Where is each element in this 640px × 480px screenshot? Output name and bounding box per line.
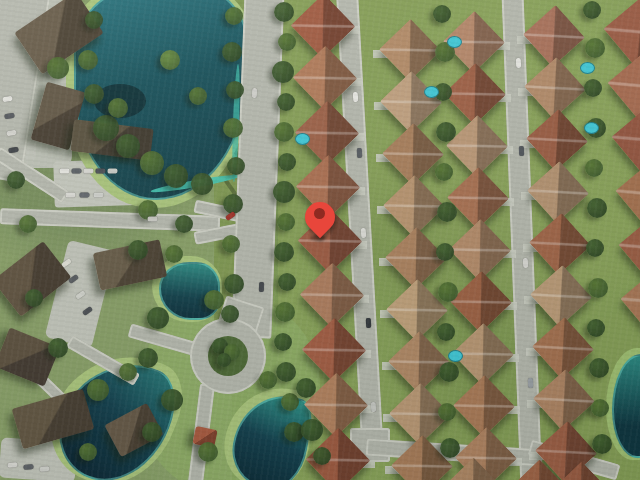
satellite-map[interactable]: [0, 0, 640, 480]
tree: [589, 358, 609, 378]
tree: [440, 438, 460, 458]
tree: [276, 362, 296, 382]
tree: [281, 393, 299, 411]
car: [252, 88, 257, 98]
tree: [19, 215, 37, 233]
tree: [587, 198, 607, 218]
tree: [277, 93, 295, 111]
tree: [93, 115, 119, 141]
car: [528, 378, 533, 388]
tree: [85, 11, 103, 29]
car: [79, 192, 89, 197]
tree: [161, 389, 183, 411]
tree: [25, 289, 43, 307]
tree: [224, 274, 244, 294]
tree: [438, 282, 458, 302]
tree: [217, 353, 231, 367]
tree: [439, 362, 459, 382]
tree: [274, 333, 292, 351]
map-pin[interactable]: [305, 202, 335, 232]
tree: [277, 213, 295, 231]
swimming-pool: [447, 36, 462, 48]
tree: [584, 79, 602, 97]
car: [259, 282, 264, 292]
tree: [226, 81, 244, 99]
tree: [275, 302, 295, 322]
car: [65, 192, 75, 197]
tree: [583, 1, 601, 19]
car: [107, 168, 117, 173]
tree: [437, 202, 457, 222]
tree: [108, 98, 128, 118]
tree: [274, 122, 294, 142]
tree: [274, 2, 294, 22]
tree: [138, 348, 158, 368]
tree: [259, 371, 277, 389]
tree: [435, 163, 453, 181]
tree: [142, 422, 162, 442]
car: [83, 168, 93, 173]
car: [361, 228, 367, 238]
tree: [436, 243, 454, 261]
tree: [436, 122, 456, 142]
swimming-pool: [580, 62, 595, 74]
car: [59, 168, 69, 173]
car: [71, 168, 81, 173]
swimming-pool: [448, 350, 463, 362]
swimming-pool: [424, 86, 439, 98]
swimming-pool: [295, 133, 310, 145]
tree: [164, 164, 188, 188]
tree: [273, 181, 295, 203]
tree: [278, 33, 296, 51]
car: [516, 58, 521, 68]
car: [39, 466, 49, 472]
tree: [225, 7, 243, 25]
tree: [147, 307, 169, 329]
tree: [222, 42, 242, 62]
car: [95, 168, 105, 173]
tree: [278, 153, 296, 171]
car: [93, 192, 103, 197]
tree: [278, 273, 296, 291]
tree: [296, 378, 316, 398]
tree: [223, 118, 243, 138]
car: [23, 464, 33, 470]
tree: [433, 5, 451, 23]
car: [366, 318, 372, 328]
tree: [301, 419, 323, 441]
tree: [116, 134, 140, 158]
tree: [198, 442, 218, 462]
tree: [175, 215, 193, 233]
tree: [588, 278, 608, 298]
tree: [48, 338, 68, 358]
tree: [7, 171, 25, 189]
swimming-pool: [584, 122, 599, 134]
tree: [79, 443, 97, 461]
tree: [227, 157, 245, 175]
tree: [160, 50, 180, 70]
tree: [165, 245, 183, 263]
tree: [47, 57, 69, 79]
tree: [592, 434, 612, 454]
map-pin-hole-icon: [314, 208, 325, 219]
tree: [87, 379, 109, 401]
tree: [585, 159, 603, 177]
tree: [313, 447, 331, 465]
tree: [221, 305, 239, 323]
tree: [585, 38, 605, 58]
tree: [272, 61, 294, 83]
tree: [140, 151, 164, 175]
tree: [222, 235, 240, 253]
car: [371, 402, 377, 412]
car: [519, 146, 524, 156]
tree: [586, 239, 604, 257]
tree: [128, 240, 148, 260]
tree: [587, 319, 605, 337]
tree: [438, 403, 456, 421]
car: [523, 258, 528, 268]
tree: [437, 323, 455, 341]
car: [357, 148, 363, 158]
tree: [591, 399, 609, 417]
tree: [78, 50, 98, 70]
tree: [84, 84, 104, 104]
car: [7, 462, 17, 468]
tree: [274, 242, 294, 262]
tree: [189, 87, 207, 105]
car: [353, 92, 359, 102]
tree: [204, 290, 224, 310]
tree: [119, 363, 137, 381]
car: [147, 216, 157, 221]
tree: [191, 173, 213, 195]
